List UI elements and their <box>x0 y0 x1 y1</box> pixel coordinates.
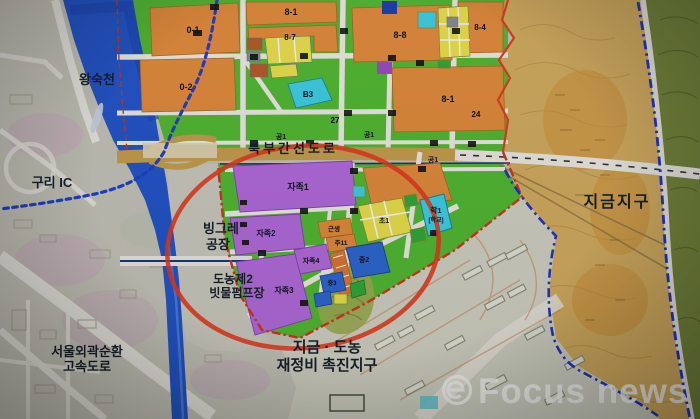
label-binggrae-2: 공장 <box>206 237 230 252</box>
parcel-label: 중3 <box>328 279 338 287</box>
parcel-label-jajok4: 자족4 <box>303 256 320 265</box>
parcel-label: 8-1 <box>284 7 297 17</box>
planning-line <box>220 163 510 164</box>
parcel-label: 8-1 <box>441 94 454 104</box>
parcel-label: 27 <box>331 116 340 125</box>
parcel-label: 공1 <box>428 156 438 164</box>
parcel-label-jajok2: 자족2 <box>256 228 276 238</box>
label-binggrae-1: 빙그레 <box>203 221 239 236</box>
parcel-label: 8-4 <box>474 23 486 32</box>
parcel-blue-small <box>314 291 332 307</box>
label-pump-1: 도농제2 <box>213 272 253 286</box>
parcel-label: 8-7 <box>284 33 296 42</box>
parcel-label: 중2 <box>359 256 369 264</box>
parcel-label-jajok3: 자족3 <box>274 285 294 295</box>
zoning-map: 0-1 8-1 8-7 8-8 0-2 8-1 8-4 B3 27 24 공1 … <box>0 0 700 419</box>
parcel-label: 학1 <box>430 205 441 215</box>
town-pond <box>420 396 438 409</box>
parcel-label: 0-2 <box>179 82 192 92</box>
parcel-yellow-tiny <box>334 294 347 304</box>
label-expressway-1: 서울외곽순환 <box>51 344 123 359</box>
parcel-label-jajok1: 자족1 <box>287 181 309 192</box>
parcel-label: 공1 <box>364 131 374 139</box>
parcel-label: 24 <box>472 110 481 119</box>
parcel-purple-small <box>377 62 392 74</box>
label-arterial-road: 북부간선도로 <box>248 141 338 156</box>
watermark-text: Focus news <box>478 372 688 411</box>
label-expressway-2: 고속도로 <box>63 359 111 374</box>
label-river: 왕숙천 <box>79 72 115 87</box>
label-promotion-2: 재정비 촉진지구 <box>277 356 378 374</box>
focus-news-watermark: Focus news <box>444 372 689 411</box>
label-jigeum-district: 지금지구 <box>584 193 651 211</box>
label-pump-2: 빗물펌프장 <box>209 285 264 300</box>
parcel-navy-small <box>382 1 397 14</box>
parcel-label: 8-8 <box>393 30 406 40</box>
parcel-label: 주11 <box>335 239 348 247</box>
river-bridge <box>143 143 217 158</box>
parcel-label: [학교] <box>428 216 443 224</box>
parcel-label: 공1 <box>276 133 286 141</box>
parcel-label: 0-1 <box>186 25 199 35</box>
label-promotion-1: 지금 · 도농 <box>293 339 362 356</box>
parcel-label: B3 <box>303 90 314 99</box>
label-guri-ic: 구리 IC <box>32 175 73 190</box>
parcel-label: 초1 <box>379 216 389 225</box>
parcel-label: 근생 <box>328 224 340 233</box>
news-photo-map: 0-1 8-1 8-7 8-8 0-2 8-1 8-4 B3 27 24 공1 … <box>0 0 700 419</box>
